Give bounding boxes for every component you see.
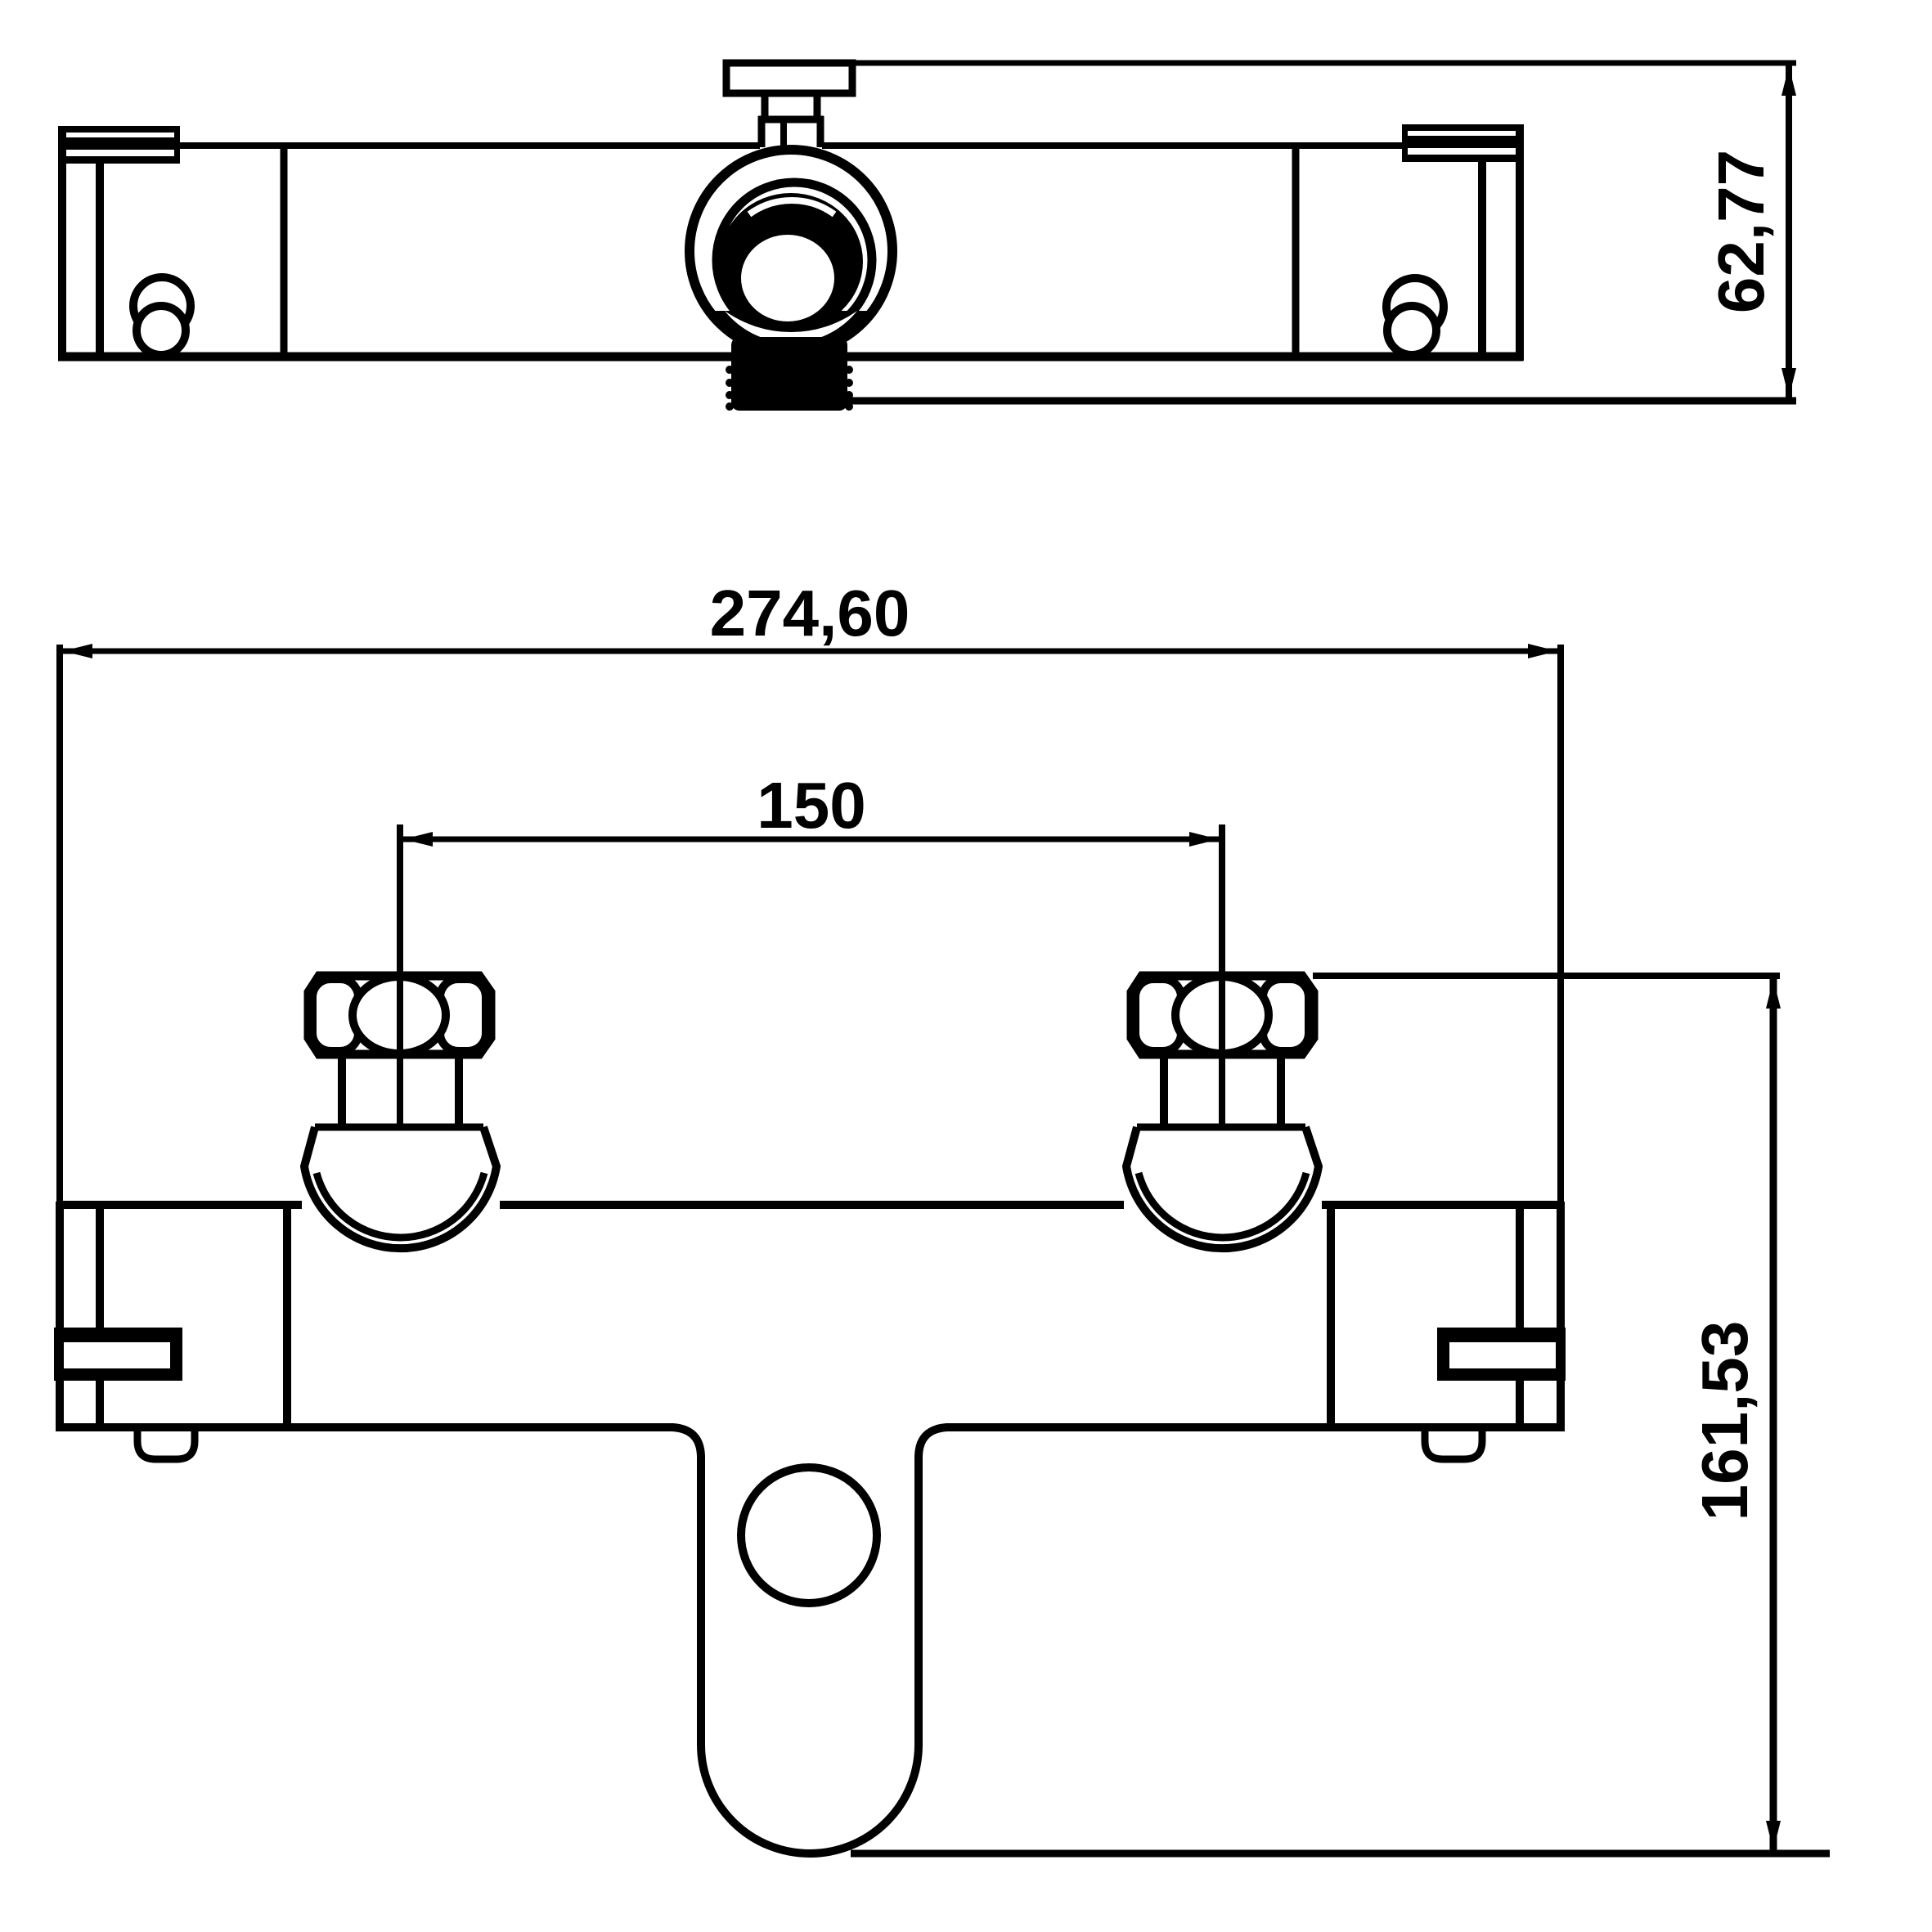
svg-text:150: 150: [757, 769, 865, 842]
svg-text:62,77: 62,77: [1705, 150, 1777, 313]
svg-text:161,53: 161,53: [1688, 1321, 1761, 1521]
svg-text:274,60: 274,60: [710, 577, 910, 649]
